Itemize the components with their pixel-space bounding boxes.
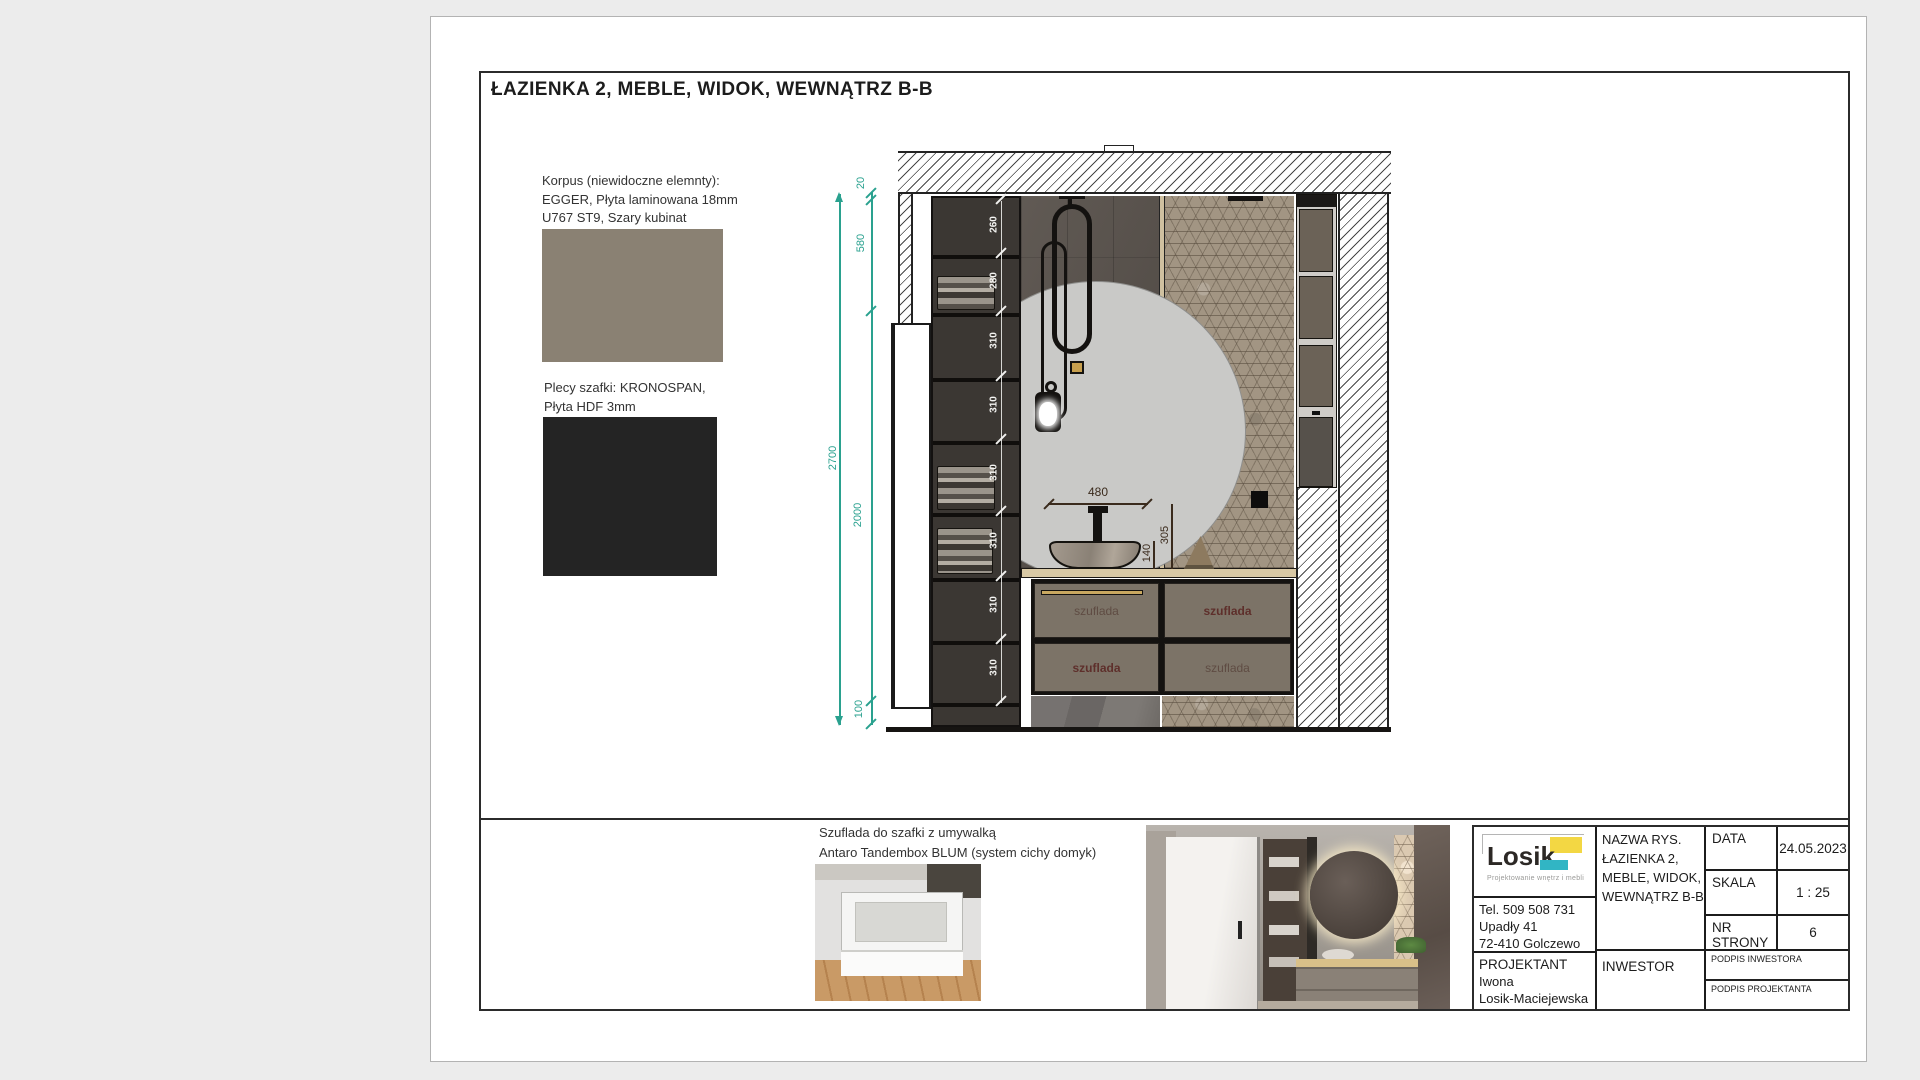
shelf-divider [933,578,1019,582]
shelf-divider [933,641,1019,645]
nazwa-line: ŁAZIENKA 2, [1602,849,1704,868]
dim-arrow [835,192,843,202]
render-towels [1269,925,1299,935]
contact-line: Tel. 509 508 731 [1479,901,1595,918]
shelf-dim-label: 310 [989,321,1000,361]
dim-label-140: 140 [1141,533,1153,573]
podpis-projektanta-cell: PODPIS PROJEKTANTA [1706,981,1848,1009]
shelf-divider [933,313,1019,317]
dim-label-20: 20 [855,153,867,213]
dim-tick [996,248,1006,258]
dim-tick [996,634,1006,644]
wall-above-vanity [1021,196,1294,568]
lantern-light [1035,392,1061,432]
dim-line-2700 [839,194,841,725]
dim-tick [996,371,1006,381]
countertop [1021,568,1297,578]
projektant-cell: PROJEKTANT Iwona Losik-Maciejewska [1474,953,1597,1009]
logo-subtext: Projektowanie wnętrz i mebli [1487,875,1584,882]
drawer-label: szuflada [1072,661,1120,675]
shelf-dim-label: 260 [989,205,1000,245]
dim-label-2700: 2700 [827,428,839,488]
nazwa-line: WEWNĄTRZ B-B [1602,887,1704,906]
dim-tick [866,696,876,706]
dim-label-100: 100 [853,679,865,739]
wall-vent [1228,196,1263,201]
render-drawer-line [1296,989,1418,991]
nazwa-cell: NAZWA RYS. ŁAZIENKA 2, MEBLE, WIDOK, WEW… [1597,827,1706,951]
note-line: Antaro Tandembox BLUM (system cichy domy… [819,843,1096,863]
right-wall-hatch [1338,194,1389,727]
render-towels [1269,957,1299,967]
vanity-drawers: szuflada szuflada szuflada szuflada [1031,579,1294,695]
note-line: Szuflada do szafki z umywalką [819,823,1096,843]
render-door [1166,837,1260,1009]
drawer-product-photo [815,864,981,1001]
dim-arrow [835,716,843,726]
cabinet-door [1299,209,1333,272]
podpis-inwestora-cell: PODPIS INWESTORA [1706,951,1848,981]
dim-label-2000: 2000 [852,485,864,545]
shelf-dim-label: 310 [989,521,1000,561]
logo-decor-line [1482,834,1584,835]
projektant-name: Iwona [1479,973,1595,990]
nr-strony-label-cell: NR STRONY [1706,916,1778,951]
right-column-cabinet [1296,194,1337,488]
dim-tick [866,306,876,316]
shelf-dim-label: 310 [989,453,1000,493]
logo-decor-line [1482,834,1483,854]
material-swatch-plecy [543,417,717,576]
note-line: Plecy szafki: KRONOSPAN, [544,379,706,398]
cabinet-dim-line [1001,201,1002,703]
render-stone-wall [1414,825,1450,1009]
pendant-brass-bead [1070,361,1084,374]
faucet-body [1093,512,1102,542]
open-door-panel [891,323,931,709]
shelf-divider [933,441,1019,445]
material-note-korpus: Korpus (niewidoczne elemnty): EGGER, Pły… [542,172,738,228]
photo-drawer-front [841,950,963,976]
dim-tick [996,434,1006,444]
nazwa-line: MEBLE, WIDOK, [1602,868,1704,887]
pendant-ceiling-mount [1059,196,1085,199]
dim-line-480 [1048,503,1148,505]
drawer-label: szuflada [1205,661,1250,675]
data-label-cell: DATA [1706,827,1778,871]
dim-tick [866,195,876,205]
logo-cell: Losik Projektowanie wnętrz i mebli [1474,827,1597,898]
dim-tick [996,506,1006,516]
photo-drawer-interior [855,902,947,942]
contact-line: 72-410 Golczewo [1479,935,1595,952]
render-towels [1269,891,1299,901]
plinth-tile-left [1031,696,1160,727]
vessel-sink [1049,541,1141,569]
dim-tick [996,194,1006,204]
left-wall-hatch [898,194,913,323]
note-line: EGGER, Płyta laminowana 18mm [542,191,738,210]
towel-stack [937,276,995,310]
wall-socket [1251,491,1268,508]
footer-divider [479,818,1850,820]
drawer-label: szuflada [1203,604,1251,618]
dim-tick [996,306,1006,316]
cabinet-top-band [1297,195,1336,207]
footer-note: Szuflada do szafki z umywalką Antaro Tan… [819,823,1096,863]
material-swatch-korpus [542,229,723,362]
dim-tick [996,571,1006,581]
projektant-name: Losik-Maciejewska [1479,990,1595,1007]
drawing-sheet: ŁAZIENKA 2, MEBLE, WIDOK, WEWNĄTRZ B-B K… [430,16,1867,1062]
cabinet-lower-panel [1299,417,1333,487]
skala-label-cell: SKALA [1706,871,1778,916]
shelf-divider [933,378,1019,382]
dim-line-chain [871,192,873,725]
dim-tick [1142,499,1152,509]
cabinet-door [1299,345,1333,407]
render-round-mirror [1310,851,1398,939]
dim-label-305: 305 [1159,515,1171,555]
drawer-handle [1041,590,1143,595]
shelf-dim-label: 310 [989,648,1000,688]
shelf-divider [933,513,1019,517]
drawer-front: szuflada [1034,583,1159,638]
right-wall-hatch-lower [1296,488,1337,727]
bathroom-render-photo [1146,825,1450,1009]
data-value-cell: 24.05.2023 [1778,827,1848,871]
towel-stack [937,528,993,574]
note-line: Płyta HDF 3mm [544,398,706,417]
dim-line-305 [1171,504,1173,569]
nr-strony-value-cell: 6 [1778,916,1848,951]
tall-cabinet [931,196,1021,727]
shelf-divider [933,703,1019,707]
towel-stack [937,466,995,510]
contact-line: Upadły 41 [1479,918,1595,935]
render-towels [1269,857,1299,867]
note-line: Korpus (niewidoczne elemnty): [542,172,738,191]
render-counter [1296,959,1418,967]
drawer-front: szuflada [1164,643,1291,692]
inwestor-cell: INWESTOR [1597,951,1706,1009]
dim-label-580: 580 [855,213,867,273]
shelf-dim-label: 280 [989,261,1000,301]
dim-label-480: 480 [1048,485,1148,499]
material-note-plecy: Plecy szafki: KRONOSPAN, Płyta HDF 3mm [544,379,706,416]
dim-tick [996,696,1006,706]
skala-value-cell: 1 : 25 [1778,871,1848,916]
ceiling-section-hatch [898,151,1391,194]
dim-tick [866,719,876,729]
render-plant [1396,937,1426,953]
cabinet-knob [1312,411,1320,415]
dim-tick [1044,499,1054,509]
nazwa-label: NAZWA RYS. [1602,830,1704,849]
shelf-dim-label: 310 [989,585,1000,625]
inwestor-label: INWESTOR [1602,959,1704,974]
dim-line-140 [1153,541,1155,569]
drawer-label: szuflada [1074,604,1119,618]
shelf-divider [933,255,1019,259]
projektant-label: PROJEKTANT [1479,956,1595,973]
logo-teal-mark [1540,860,1568,870]
floor-line [886,727,1391,732]
shelf-dim-label: 310 [989,385,1000,425]
render-door-handle [1238,921,1242,939]
render-floor [1258,1001,1418,1009]
cabinet-door [1299,276,1333,339]
plinth-tile-right [1162,696,1294,727]
title-block: Losik Projektowanie wnętrz i mebli Tel. … [1472,825,1850,1011]
ceiling-notch [1104,145,1134,152]
drawer-front: szuflada [1034,643,1159,692]
page-title: ŁAZIENKA 2, MEBLE, WIDOK, WEWNĄTRZ B-B [491,79,933,101]
drawer-front: szuflada [1164,583,1291,638]
lantern-glow [1039,402,1057,426]
contact-cell: Tel. 509 508 731 Upadły 41 72-410 Golcze… [1474,898,1597,953]
note-line: U767 ST9, Szary kubinat [542,209,738,228]
